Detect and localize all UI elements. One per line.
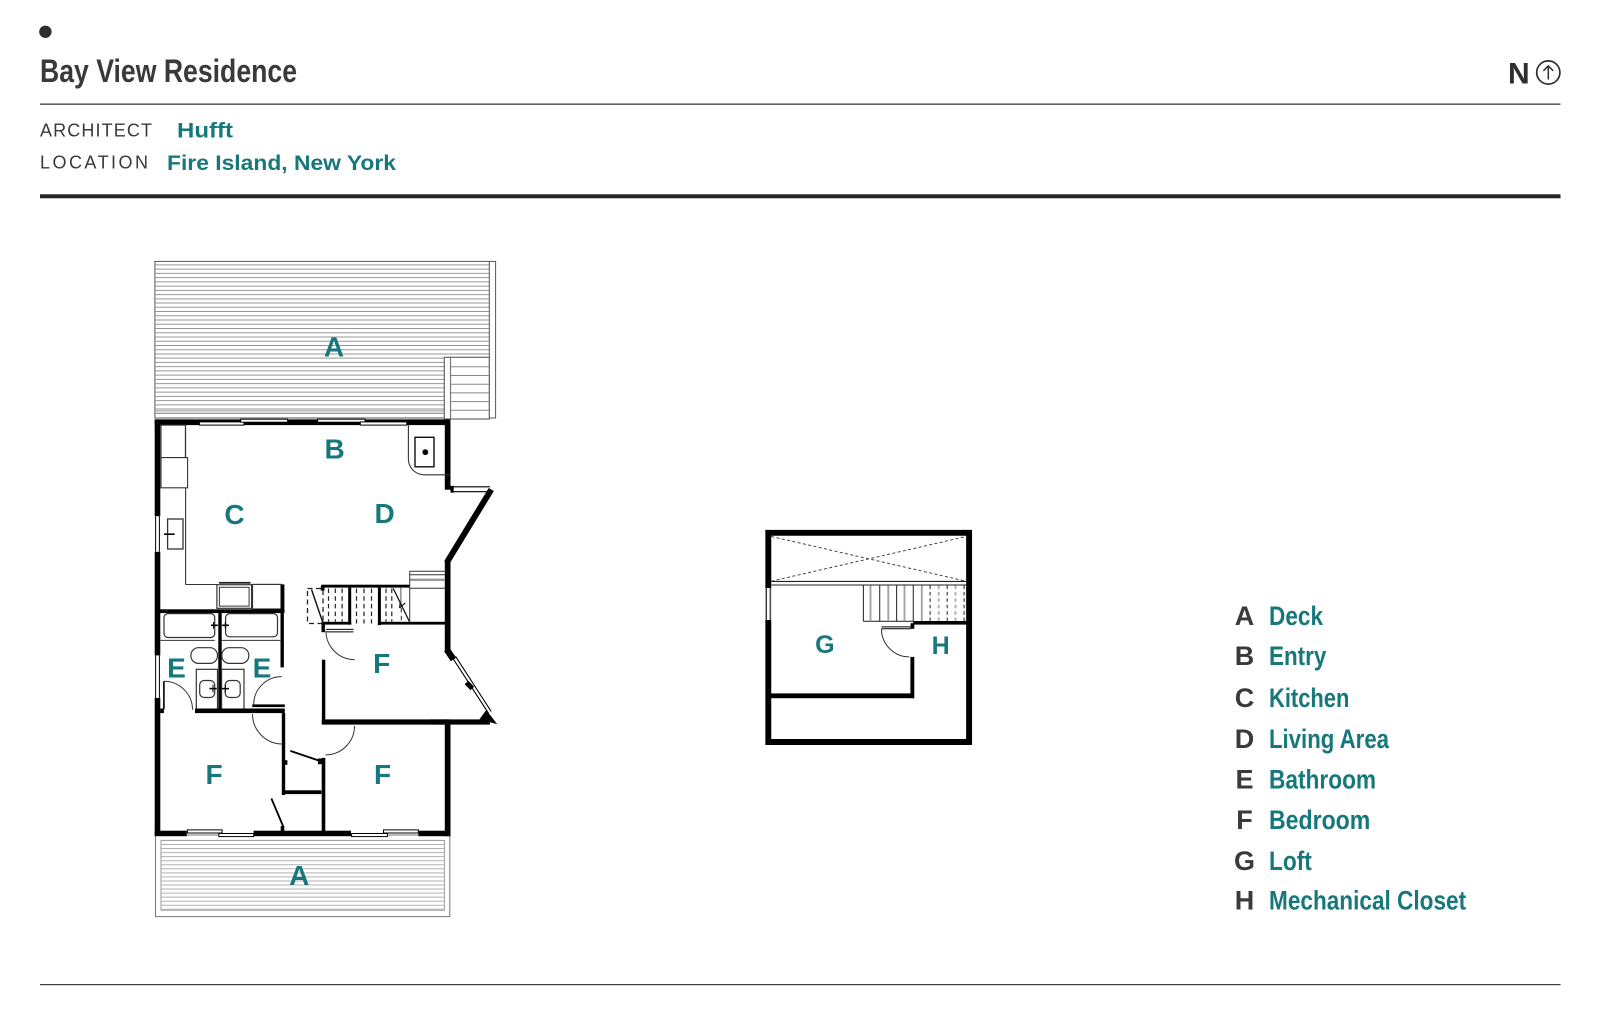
svg-text:Kitchen: Kitchen [1269, 683, 1349, 713]
svg-text:F: F [1236, 805, 1253, 835]
svg-text:Bathroom: Bathroom [1269, 765, 1376, 795]
svg-text:A: A [324, 332, 344, 363]
svg-text:D: D [374, 498, 394, 529]
svg-text:F: F [205, 759, 222, 790]
svg-text:E: E [167, 653, 186, 684]
svg-text:G: G [1234, 846, 1255, 876]
svg-text:G: G [815, 631, 834, 659]
svg-text:C: C [1235, 683, 1255, 713]
svg-text:Hufft: Hufft [177, 120, 233, 143]
svg-text:LOCATION: LOCATION [40, 153, 148, 173]
svg-text:C: C [224, 499, 244, 530]
svg-text:H: H [932, 632, 950, 660]
svg-text:A: A [289, 860, 309, 891]
svg-text:Living Area: Living Area [1269, 724, 1390, 754]
svg-text:Fire Island, New York: Fire Island, New York [167, 151, 396, 175]
svg-text:Entry: Entry [1269, 641, 1326, 671]
svg-text:ARCHITECT: ARCHITECT [40, 121, 152, 141]
svg-text:D: D [1235, 724, 1255, 754]
svg-text:E: E [253, 653, 272, 684]
svg-text:Bedroom: Bedroom [1269, 805, 1370, 835]
svg-text:H: H [1235, 886, 1255, 916]
svg-text:Loft: Loft [1269, 846, 1312, 876]
svg-text:F: F [373, 648, 390, 679]
svg-text:A: A [1235, 601, 1255, 631]
svg-text:F: F [374, 759, 391, 790]
svg-text:Deck: Deck [1269, 601, 1324, 631]
svg-text:B: B [1235, 641, 1255, 671]
svg-text:Mechanical Closet: Mechanical Closet [1269, 886, 1466, 916]
svg-text:B: B [324, 433, 344, 464]
svg-text:E: E [1235, 765, 1253, 795]
svg-text:Bay View Residence: Bay View Residence [40, 53, 297, 89]
svg-text:N: N [1508, 58, 1530, 91]
